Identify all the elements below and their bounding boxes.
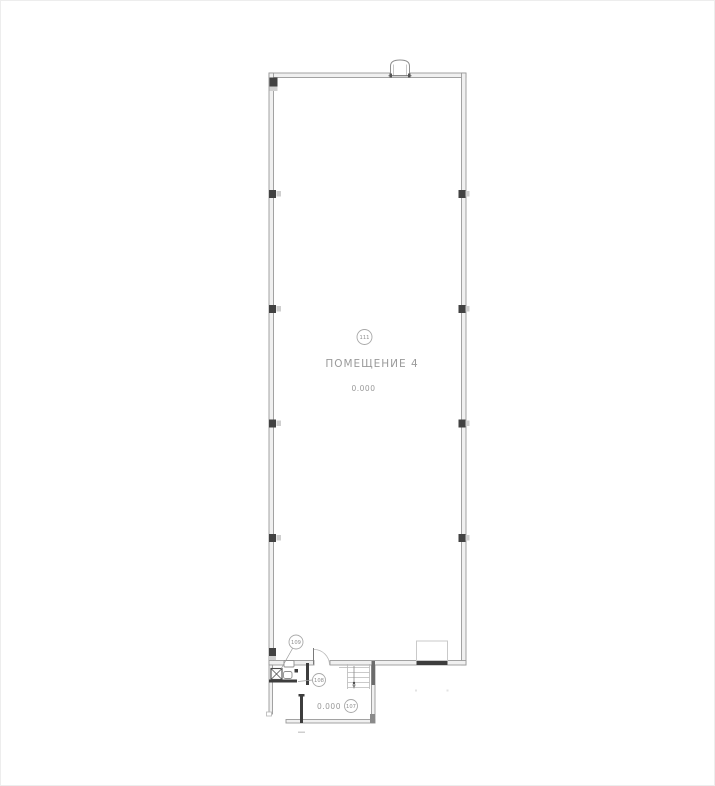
door-arc (314, 650, 330, 666)
column-mark-shadow (466, 535, 470, 541)
arch-base-right (408, 74, 411, 78)
gate-symbol (417, 641, 448, 661)
interior-wall-stub-cap (299, 694, 305, 697)
column-mark (459, 190, 466, 198)
annex-annotations: 109 108 0.000 107 (281, 635, 358, 713)
column-mark-shadow (270, 87, 278, 92)
gate-threshold (417, 661, 448, 666)
stair-arrowhead-icon (352, 685, 356, 690)
annex-right-wall-dark-top (372, 661, 376, 685)
floor-plan-svg: 111 ПОМЕЩЕНИЕ 4 0.000 (1, 1, 715, 786)
column-mark (269, 305, 276, 313)
column-mark-shadow (277, 191, 282, 197)
column-mark-shadow (277, 306, 282, 312)
interior-wall-stub (300, 694, 303, 723)
column-mark-shadow (269, 656, 276, 660)
annex-walls (267, 661, 376, 723)
annex-left-wall-end (267, 712, 272, 716)
column-mark (269, 648, 276, 656)
column-mark (269, 534, 276, 542)
hall-right-wall (462, 73, 467, 665)
arch-base-left (390, 74, 393, 78)
hall-left-wall (269, 73, 274, 665)
stairs (339, 664, 370, 689)
column-mark-shadow (277, 421, 282, 427)
annex-bottom-wall (286, 720, 375, 724)
column-mark-shadow (466, 421, 470, 427)
door-swing (314, 648, 330, 665)
room-108-label: 108 (314, 678, 324, 684)
room-107-label: 107 (346, 704, 356, 710)
room-name-label: ПОМЕЩЕНИЕ 4 (325, 358, 418, 370)
annex-corner-post (370, 714, 375, 723)
room-number-label: 111 (360, 335, 370, 341)
door-hinge-nub (295, 669, 299, 673)
floor-plan-canvas: 111 ПОМЕЩЕНИЕ 4 0.000 (0, 0, 715, 786)
column-mark-shadow (466, 191, 470, 197)
hall-elevation-label: 0.000 (352, 384, 376, 393)
gate-opening (417, 641, 448, 665)
room-109-label: 109 (291, 640, 301, 646)
column-mark-shadow (466, 306, 470, 312)
annex-elevation-label: 0.000 (317, 702, 341, 711)
wc-partition-vertical (306, 663, 309, 685)
hall-annotations: 111 ПОМЕЩЕНИЕ 4 0.000 (325, 330, 418, 394)
column-mark (269, 190, 276, 198)
column-mark (270, 78, 278, 87)
column-mark-shadow (277, 535, 282, 541)
column-mark (459, 305, 466, 313)
stair-direction-dot (353, 682, 355, 684)
column-mark (269, 420, 276, 428)
column-mark (459, 534, 466, 542)
column-mark (459, 420, 466, 428)
hall-top-wall (269, 73, 466, 78)
toilet (284, 672, 293, 679)
top-arch-symbol (389, 60, 412, 78)
